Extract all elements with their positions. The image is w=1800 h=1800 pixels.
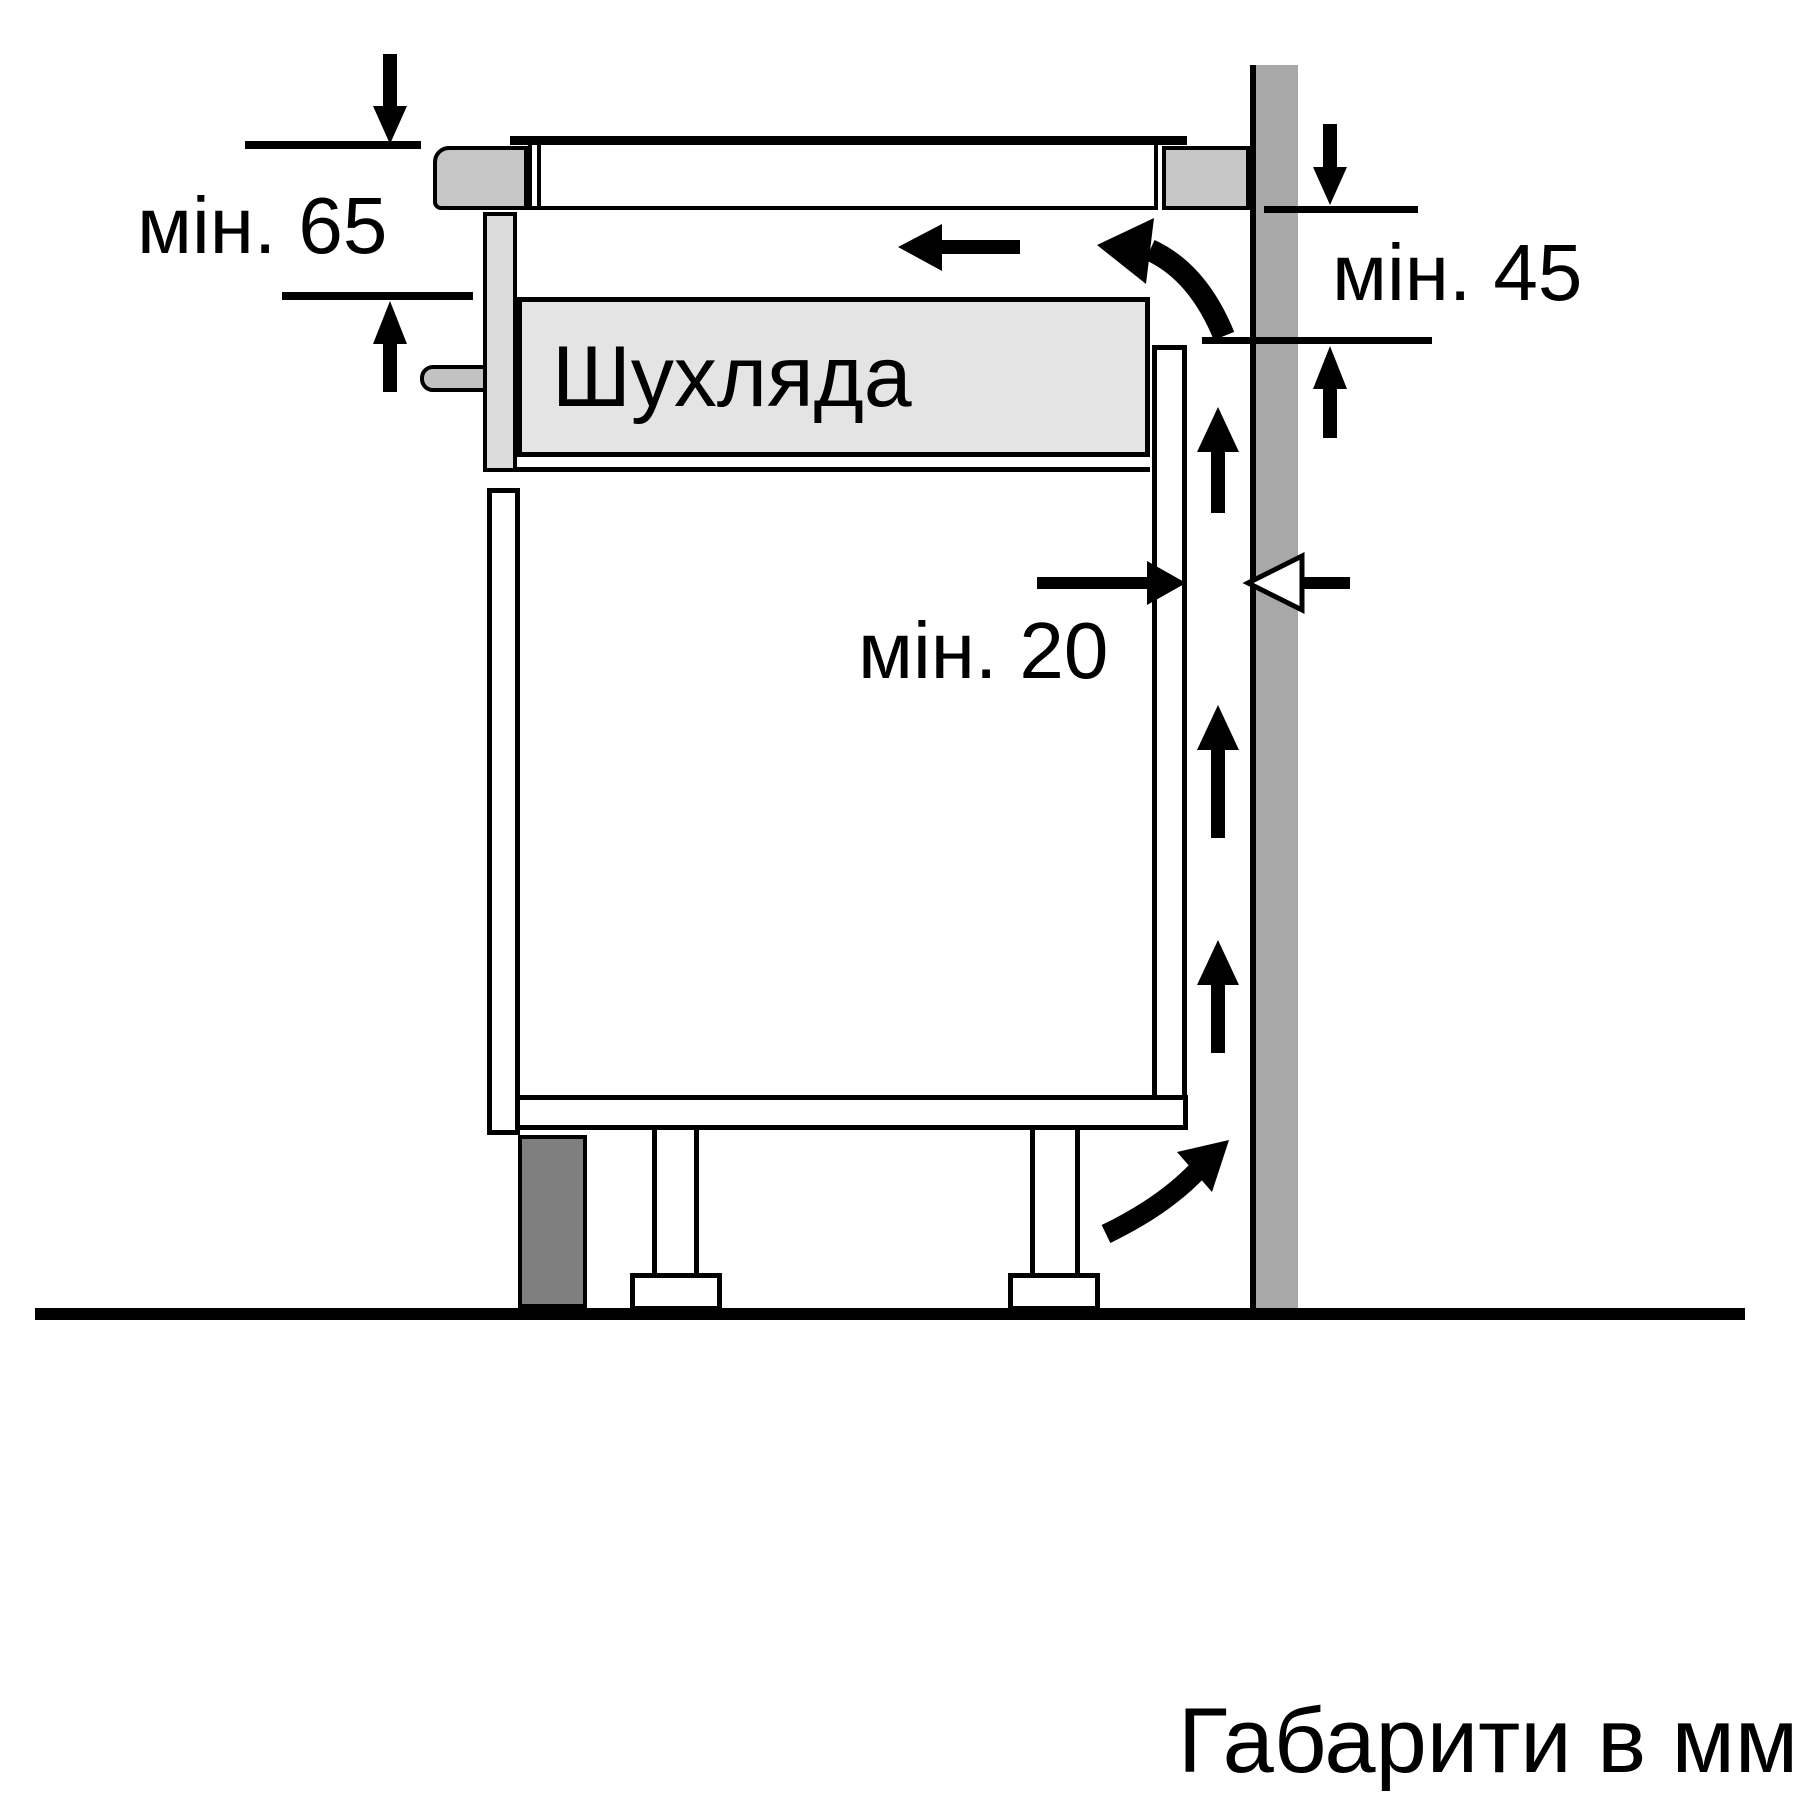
airflow-up-arrow-1-icon xyxy=(1197,407,1239,513)
airflow-curved-arrow-top xyxy=(1150,250,1224,336)
airflow-curved-arrow-bottom xyxy=(1106,1170,1198,1234)
dim-45-arrow-up-icon xyxy=(1313,346,1347,438)
dim-20-arrow-right-icon xyxy=(1037,561,1186,605)
airflow-curved-arrow-top-head-icon xyxy=(1097,218,1154,284)
airflow-up-arrow-2-icon xyxy=(1197,705,1239,838)
dim-20-arrow-left-icon xyxy=(1248,556,1302,610)
dim-65-arrow-up-icon xyxy=(373,301,407,392)
dim-20-label: мін. 20 xyxy=(858,611,1108,691)
installation-diagram: Шухляда мін. 65 мі xyxy=(0,0,1800,1800)
dim-45-arrow-down-icon xyxy=(1313,124,1347,205)
dim-65-arrow-down-icon xyxy=(373,54,407,144)
dim-20-arrow-left-shaft xyxy=(1300,577,1350,589)
airflow-up-arrow-3-icon xyxy=(1197,940,1239,1053)
airflow-left-arrow-icon xyxy=(898,224,1020,271)
dim-65-label: мін. 65 xyxy=(137,186,387,266)
units-note: Габарити в мм xyxy=(1178,1695,1798,1787)
dim-45-label: мін. 45 xyxy=(1332,233,1582,313)
